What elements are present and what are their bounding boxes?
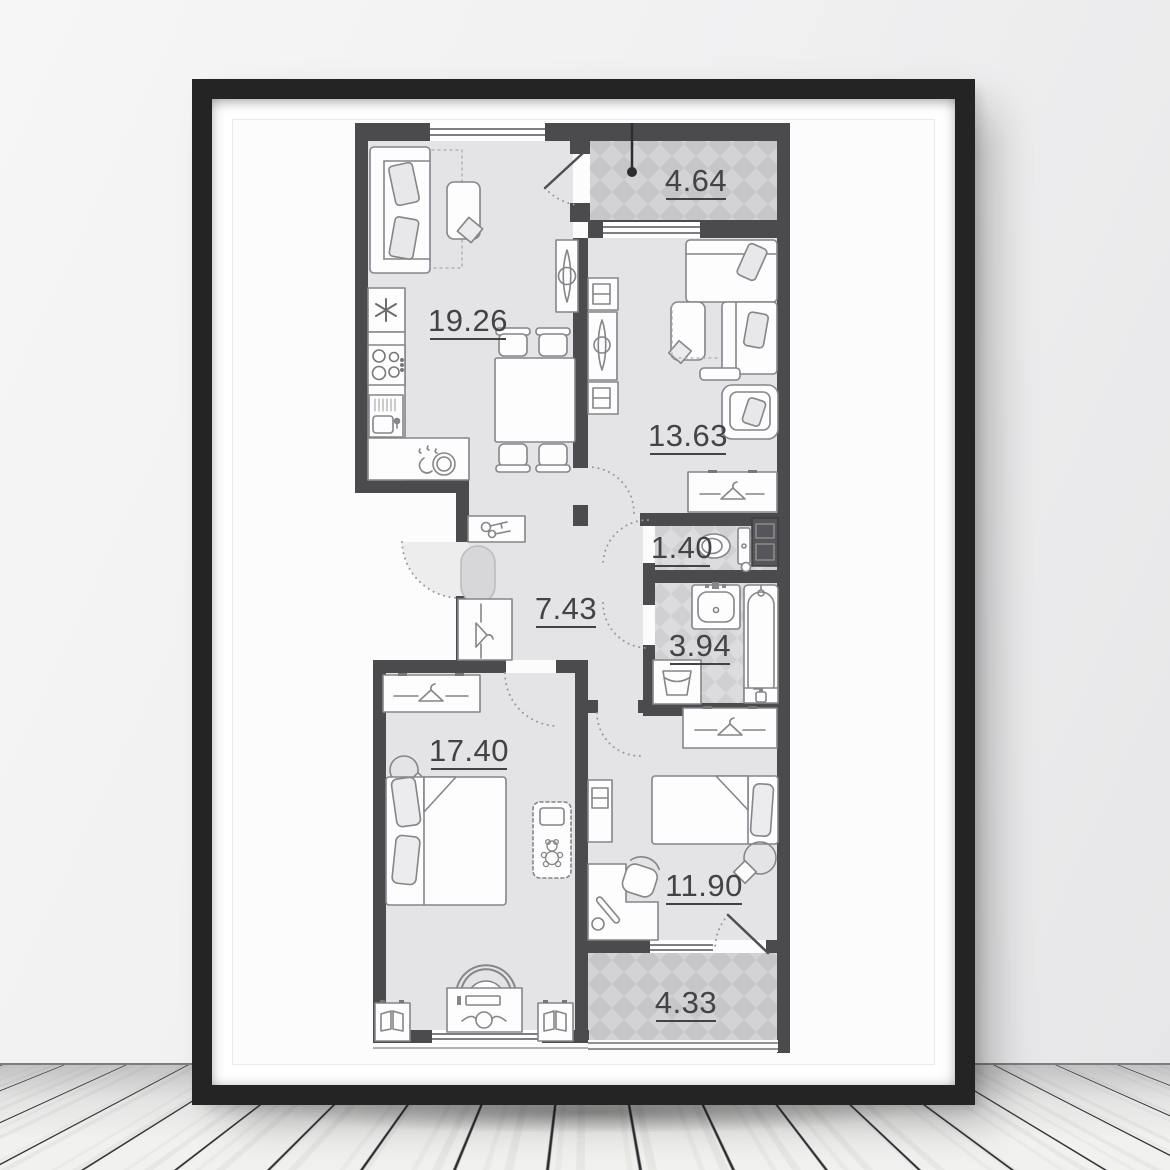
- mat-bevel: [232, 119, 935, 1065]
- picture-frame: [192, 79, 975, 1105]
- frame-mat: [212, 99, 955, 1085]
